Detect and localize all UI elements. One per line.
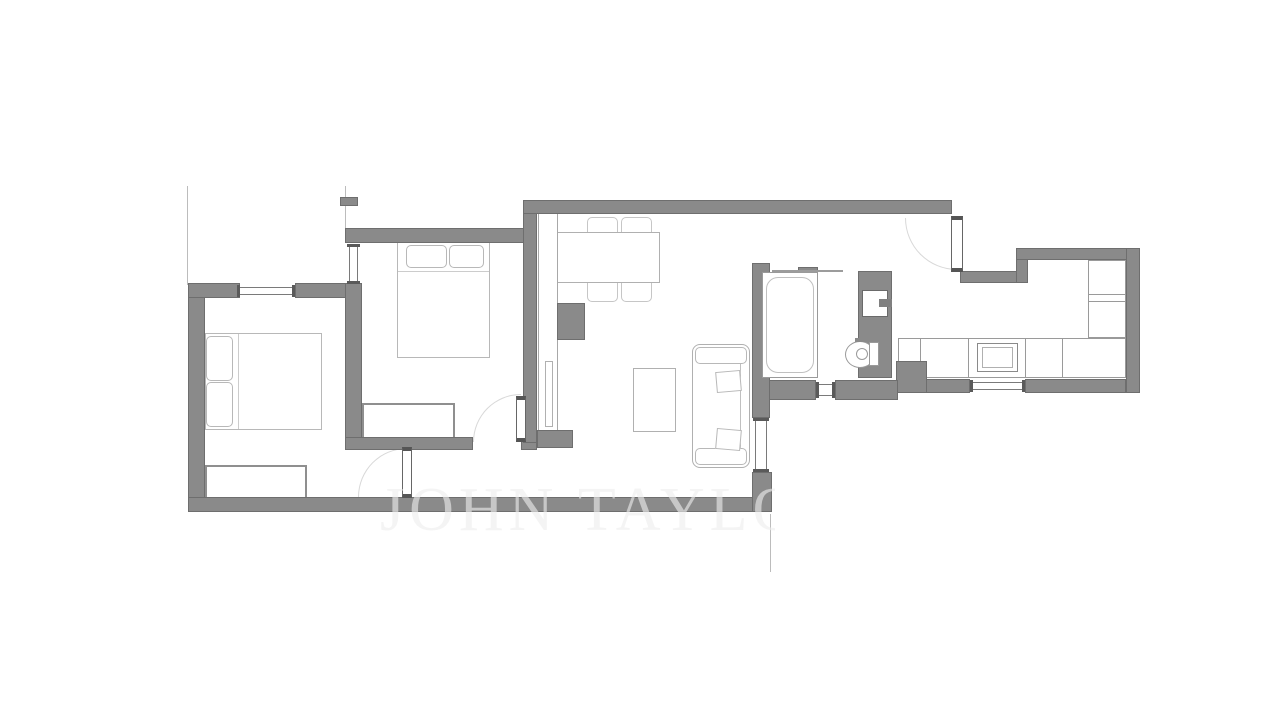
- kitchen-unit-divider: [1088, 301, 1126, 302]
- wall-living-top: [523, 200, 952, 214]
- wall-cap-terrace: [340, 197, 358, 206]
- wall-kitchen-right: [1126, 248, 1140, 393]
- wall-bath-kitchen-junction: [896, 361, 927, 393]
- kitchen-counter-divider: [968, 338, 969, 378]
- cooktop-appliance-inner: [982, 347, 1013, 368]
- watermark-text: JOHN TAYLOR: [380, 480, 775, 538]
- wall-kitchen-bottom-right: [1025, 379, 1126, 393]
- wall-bedroom1-left: [188, 283, 205, 512]
- sofa-armrest: [695, 347, 747, 364]
- entrance-door-swing-arc: [905, 218, 957, 270]
- window-bathroom: [816, 382, 835, 398]
- sofa-cushion: [715, 428, 742, 451]
- washbasin-faucet: [879, 299, 892, 307]
- tall-cabinet-door: [545, 361, 553, 427]
- kitchen-unit-divider: [1088, 294, 1126, 295]
- toilet-wall-tick: [855, 338, 867, 342]
- bathtub-basin: [766, 277, 814, 373]
- wall-hallway-corner: [537, 430, 573, 448]
- floor-plan: JOHN TAYLOR: [0, 0, 1280, 720]
- toilet-drain: [856, 348, 868, 360]
- pillow: [406, 245, 447, 268]
- wall-between-bedrooms: [345, 283, 362, 448]
- wall-bathroom-bottom-right: [835, 380, 898, 400]
- terrace-boundary-line-right: [345, 186, 346, 228]
- bed-sheet-line: [238, 334, 239, 429]
- wall-kitchen-top: [1016, 248, 1140, 260]
- bed-sheet-line: [398, 271, 489, 272]
- pillow: [206, 336, 233, 381]
- window-bedroom2: [347, 244, 360, 284]
- pillow: [206, 382, 233, 427]
- terrace-boundary-line-left: [187, 186, 188, 285]
- wardrobe-bedroom2: [362, 403, 455, 441]
- kitchen-counter-divider: [1062, 338, 1063, 378]
- masonry-column: [557, 303, 585, 340]
- window-living-room: [753, 418, 769, 472]
- wall-bedroom2-top: [345, 228, 537, 243]
- toilet-tank: [869, 342, 879, 366]
- pillow: [449, 245, 484, 268]
- coffee-table: [633, 368, 676, 432]
- bedroom2-door-leaf: [516, 396, 526, 442]
- kitchen-counter-divider: [1025, 338, 1026, 378]
- window-bedroom1: [237, 285, 295, 297]
- entrance-door-leaf: [951, 216, 963, 272]
- wall-bedroom1-top-left: [188, 283, 240, 298]
- dining-table: [557, 232, 660, 283]
- window-kitchen: [970, 380, 1025, 392]
- sofa-cushion: [715, 370, 742, 393]
- kitchen-tall-units: [1088, 260, 1126, 338]
- wardrobe-bedroom1: [205, 465, 307, 501]
